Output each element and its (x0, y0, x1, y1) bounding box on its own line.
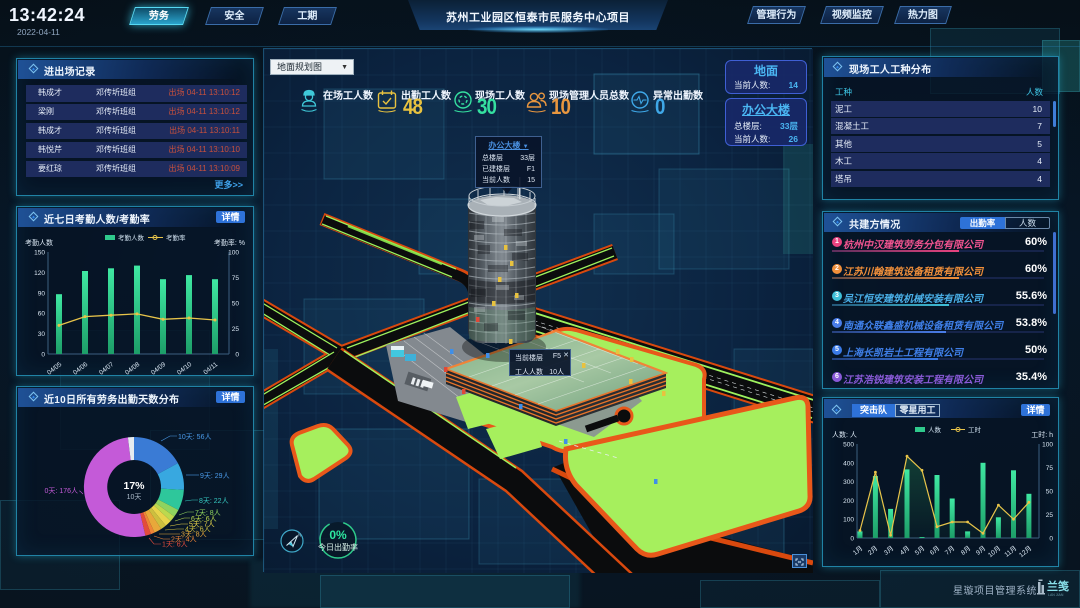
svg-text:N: N (298, 533, 301, 538)
svg-text:考勤人数: 考勤人数 (25, 238, 53, 247)
svg-text:25: 25 (1046, 512, 1054, 519)
svg-text:0: 0 (41, 352, 45, 359)
svg-text:100: 100 (228, 250, 239, 257)
svg-text:400: 400 (843, 460, 854, 467)
svg-text:0: 0 (1049, 536, 1053, 543)
svg-text:30: 30 (38, 331, 46, 338)
svg-text:兰笺: 兰笺 (1047, 579, 1069, 593)
svg-text:50: 50 (232, 301, 240, 308)
svg-text:500: 500 (843, 442, 854, 449)
svg-text:考勤率: 考勤率 (166, 233, 186, 242)
svg-text:50: 50 (1046, 489, 1054, 496)
svg-text:人数: 人: 人数: 人 (832, 430, 857, 439)
svg-text:10天: 10天 (127, 493, 142, 501)
svg-text:11月: 11月 (1003, 544, 1018, 558)
svg-text:9月: 9月 (974, 544, 987, 557)
svg-text:90: 90 (38, 290, 46, 297)
svg-text:04/11: 04/11 (202, 361, 219, 375)
svg-text:4月: 4月 (898, 544, 911, 557)
svg-text:0: 0 (235, 352, 239, 359)
svg-text:75: 75 (232, 275, 240, 282)
svg-text:25: 25 (232, 326, 240, 333)
svg-text:6月: 6月 (928, 544, 941, 557)
svg-text:04/09: 04/09 (150, 361, 167, 375)
svg-text:04/07: 04/07 (98, 361, 115, 375)
svg-text:120: 120 (34, 270, 45, 277)
svg-text:今日出勤率: 今日出勤率 (318, 542, 358, 552)
svg-text:8月: 8月 (959, 544, 972, 557)
svg-text:考勤率: %: 考勤率: % (214, 238, 245, 247)
svg-text:100: 100 (843, 517, 854, 524)
svg-text:10月: 10月 (986, 544, 1002, 559)
svg-text:0%: 0% (329, 528, 347, 542)
svg-text:工时: 工时 (968, 425, 982, 434)
svg-text:75: 75 (1046, 465, 1054, 472)
svg-text:300: 300 (843, 479, 854, 486)
svg-text:7月: 7月 (943, 544, 956, 557)
svg-text:工时: h: 工时: h (1031, 430, 1053, 439)
svg-text:60: 60 (38, 311, 46, 318)
svg-text:1天: 6人: 1天: 6人 (162, 541, 188, 549)
svg-text:10天: 56人: 10天: 56人 (178, 433, 211, 441)
svg-text:100: 100 (1042, 442, 1053, 449)
svg-text:04/08: 04/08 (124, 361, 141, 375)
svg-text:17%: 17% (123, 480, 145, 492)
svg-text:0: 0 (850, 536, 854, 543)
svg-text:LAN JIAN: LAN JIAN (1048, 593, 1064, 597)
svg-text:150: 150 (34, 250, 45, 257)
svg-text:3月: 3月 (882, 544, 895, 557)
svg-text:04/10: 04/10 (176, 361, 193, 375)
svg-text:5月: 5月 (913, 544, 926, 557)
svg-text:0天: 176人: 0天: 176人 (45, 487, 78, 495)
svg-text:9天: 29人: 9天: 29人 (200, 472, 230, 480)
svg-text:200: 200 (843, 498, 854, 505)
svg-text:1月: 1月 (851, 544, 864, 557)
svg-text:考勤人数: 考勤人数 (118, 233, 145, 242)
svg-text:8天: 22人: 8天: 22人 (199, 497, 229, 505)
svg-text:人数: 人数 (928, 425, 942, 434)
svg-text:12月: 12月 (1017, 544, 1033, 559)
svg-text:04/05: 04/05 (46, 361, 63, 375)
svg-text:2月: 2月 (866, 544, 879, 557)
svg-text:04/06: 04/06 (72, 361, 89, 375)
